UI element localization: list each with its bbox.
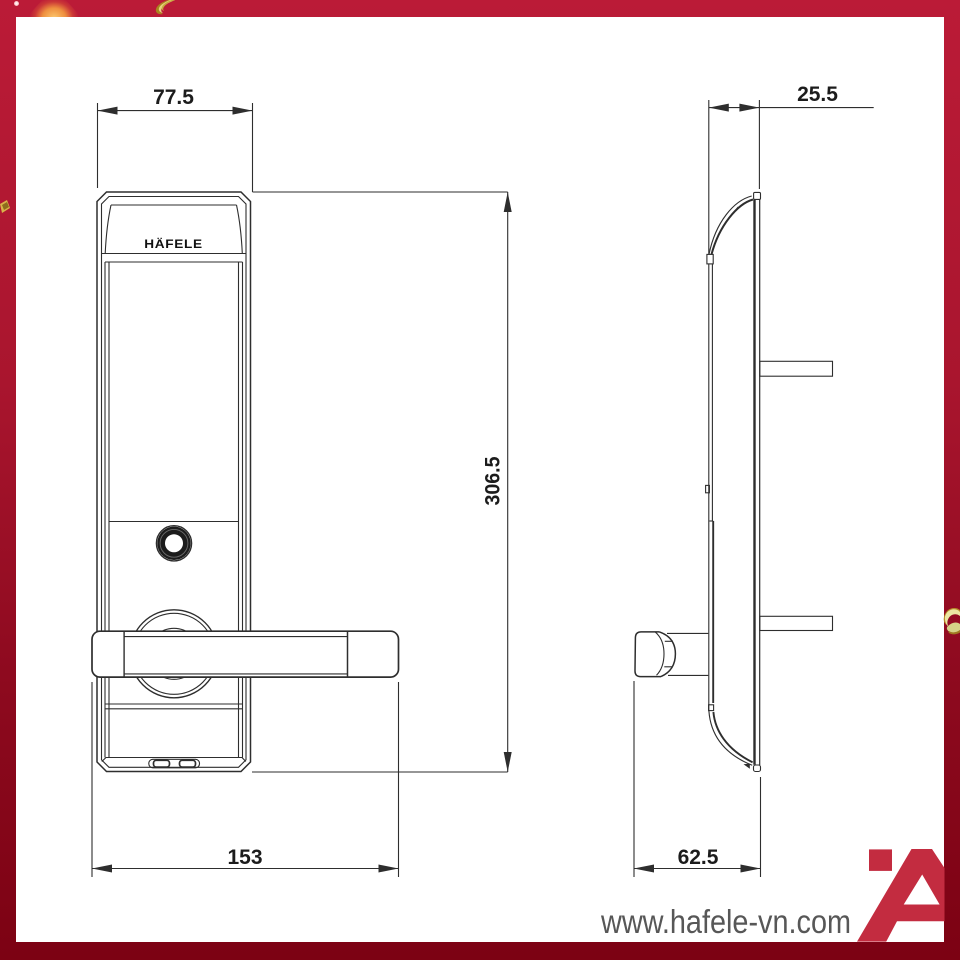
svg-text:62.5: 62.5 [678,846,719,869]
svg-text:306.5: 306.5 [482,456,505,505]
svg-text:www.hafele-vn.com: www.hafele-vn.com [600,903,851,940]
svg-text:77.5: 77.5 [153,86,194,109]
svg-text:25.5: 25.5 [797,83,838,106]
svg-text:153: 153 [227,846,262,869]
svg-text:HÄFELE: HÄFELE [144,236,203,251]
